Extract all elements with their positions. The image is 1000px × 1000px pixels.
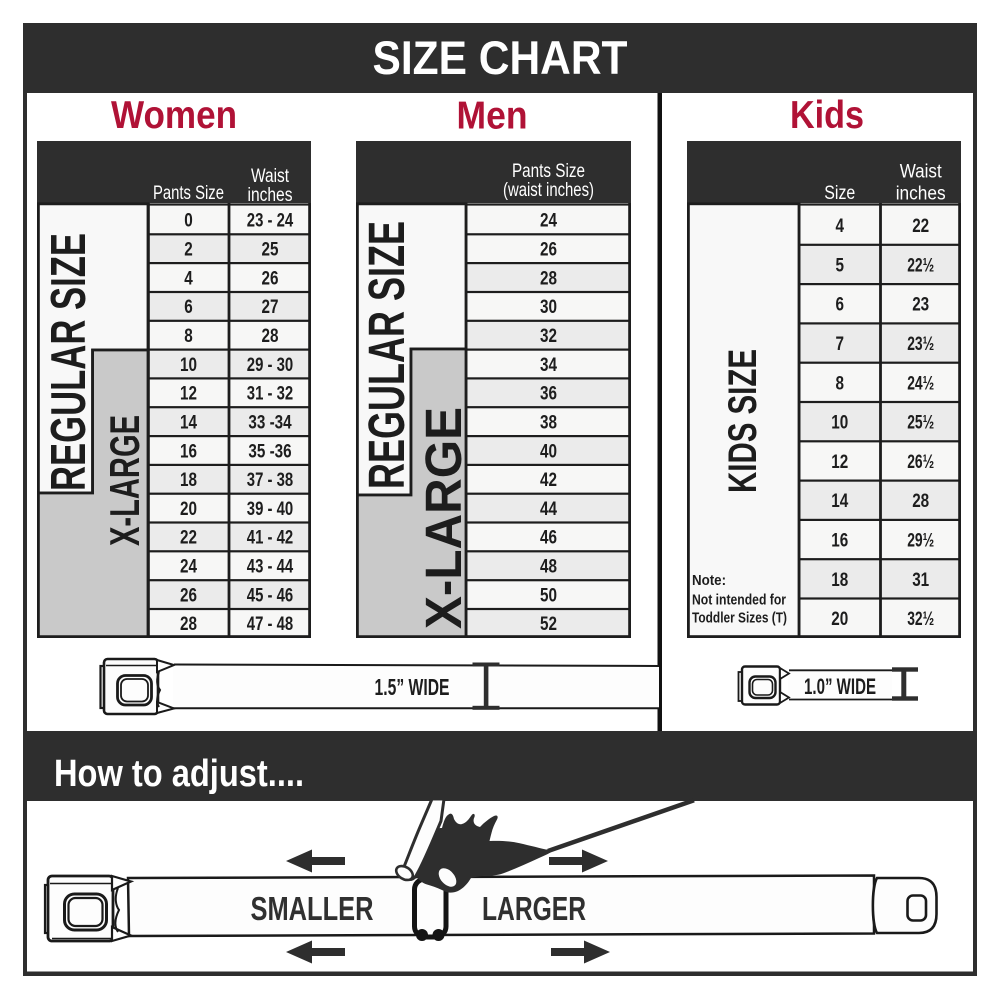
svg-text:47 - 48: 47 - 48 [247, 613, 294, 635]
svg-text:5: 5 [836, 254, 845, 276]
svg-text:26½: 26½ [907, 451, 934, 473]
svg-text:10: 10 [180, 354, 197, 376]
svg-text:Waist: Waist [900, 162, 943, 183]
svg-text:1.0” WIDE: 1.0” WIDE [804, 674, 876, 699]
svg-text:28: 28 [180, 613, 197, 635]
svg-text:REGULAR SIZE: REGULAR SIZE [358, 221, 415, 489]
svg-text:Men: Men [457, 95, 528, 138]
svg-text:32: 32 [540, 325, 557, 347]
svg-text:29 - 30: 29 - 30 [247, 354, 294, 376]
svg-text:42: 42 [540, 469, 557, 491]
svg-text:34: 34 [540, 354, 557, 376]
svg-text:37 - 38: 37 - 38 [247, 469, 294, 491]
svg-text:33 -34: 33 -34 [248, 411, 291, 433]
svg-text:Pants Size: Pants Size [512, 161, 585, 182]
svg-text:39 - 40: 39 - 40 [247, 498, 294, 520]
svg-text:How to adjust....: How to adjust.... [54, 753, 304, 795]
svg-text:23: 23 [912, 294, 929, 316]
svg-text:38: 38 [540, 411, 557, 433]
svg-text:SIZE CHART: SIZE CHART [373, 32, 628, 85]
svg-text:6: 6 [836, 294, 845, 316]
svg-text:40: 40 [540, 440, 557, 462]
svg-text:X-LARGE: X-LARGE [415, 407, 472, 629]
svg-text:8: 8 [184, 325, 193, 347]
svg-text:24½: 24½ [907, 372, 934, 394]
svg-text:18: 18 [180, 469, 197, 491]
svg-text:27: 27 [262, 296, 279, 318]
svg-text:Pants Size: Pants Size [153, 183, 224, 204]
svg-text:Not intended for: Not intended for [692, 592, 786, 609]
svg-text:28: 28 [262, 325, 279, 347]
svg-text:41 - 42: 41 - 42 [247, 527, 294, 549]
svg-text:12: 12 [180, 383, 197, 405]
svg-text:14: 14 [831, 490, 848, 512]
svg-text:14: 14 [180, 411, 197, 433]
svg-text:16: 16 [831, 530, 848, 552]
svg-text:28: 28 [912, 490, 929, 512]
svg-text:inches: inches [248, 185, 293, 206]
svg-text:Kids: Kids [790, 94, 864, 137]
svg-text:22½: 22½ [907, 254, 934, 276]
svg-text:35 -36: 35 -36 [248, 440, 291, 462]
svg-text:50: 50 [540, 584, 557, 606]
svg-text:KIDS SIZE: KIDS SIZE [721, 349, 765, 493]
svg-text:20: 20 [831, 608, 848, 630]
svg-text:31: 31 [912, 569, 929, 591]
svg-text:Waist: Waist [251, 166, 290, 187]
svg-text:(waist inches): (waist inches) [503, 180, 594, 201]
svg-text:25½: 25½ [907, 412, 934, 434]
svg-text:Note:: Note: [692, 572, 726, 589]
svg-text:48: 48 [540, 556, 557, 578]
svg-text:29½: 29½ [907, 530, 934, 552]
svg-text:10: 10 [831, 412, 848, 434]
svg-text:Toddler Sizes (T): Toddler Sizes (T) [692, 610, 787, 627]
svg-text:16: 16 [180, 440, 197, 462]
svg-text:24: 24 [540, 210, 557, 232]
svg-text:20: 20 [180, 498, 197, 520]
svg-text:Size: Size [824, 183, 855, 204]
svg-text:28: 28 [540, 267, 557, 289]
svg-text:32½: 32½ [907, 608, 934, 630]
svg-text:REGULAR SIZE: REGULAR SIZE [42, 233, 96, 491]
svg-text:7: 7 [836, 333, 845, 355]
svg-text:52: 52 [540, 613, 557, 635]
svg-text:31 - 32: 31 - 32 [247, 383, 294, 405]
svg-text:LARGER: LARGER [482, 890, 586, 927]
svg-text:2: 2 [184, 239, 193, 261]
svg-text:23 - 24: 23 - 24 [247, 210, 294, 232]
svg-text:36: 36 [540, 383, 557, 405]
svg-text:25: 25 [262, 239, 279, 261]
svg-text:Women: Women [111, 94, 237, 137]
svg-text:26: 26 [262, 267, 279, 289]
svg-text:18: 18 [831, 569, 848, 591]
svg-text:0: 0 [184, 210, 193, 232]
svg-text:30: 30 [540, 296, 557, 318]
svg-text:SMALLER: SMALLER [251, 890, 374, 927]
svg-text:1.5” WIDE: 1.5” WIDE [375, 674, 450, 700]
svg-text:4: 4 [184, 267, 193, 289]
svg-text:43 - 44: 43 - 44 [247, 556, 294, 578]
svg-text:4: 4 [836, 215, 845, 237]
svg-text:26: 26 [540, 239, 557, 261]
svg-text:23½: 23½ [907, 333, 934, 355]
svg-text:44: 44 [540, 498, 557, 520]
svg-text:6: 6 [184, 296, 193, 318]
svg-text:45 - 46: 45 - 46 [247, 584, 294, 606]
svg-text:inches: inches [896, 184, 946, 205]
svg-text:22: 22 [912, 215, 929, 237]
svg-text:X-LARGE: X-LARGE [101, 415, 148, 546]
svg-text:46: 46 [540, 527, 557, 549]
svg-text:12: 12 [831, 451, 848, 473]
svg-text:24: 24 [180, 556, 197, 578]
svg-text:22: 22 [180, 527, 197, 549]
svg-text:8: 8 [836, 372, 845, 394]
svg-text:26: 26 [180, 584, 197, 606]
